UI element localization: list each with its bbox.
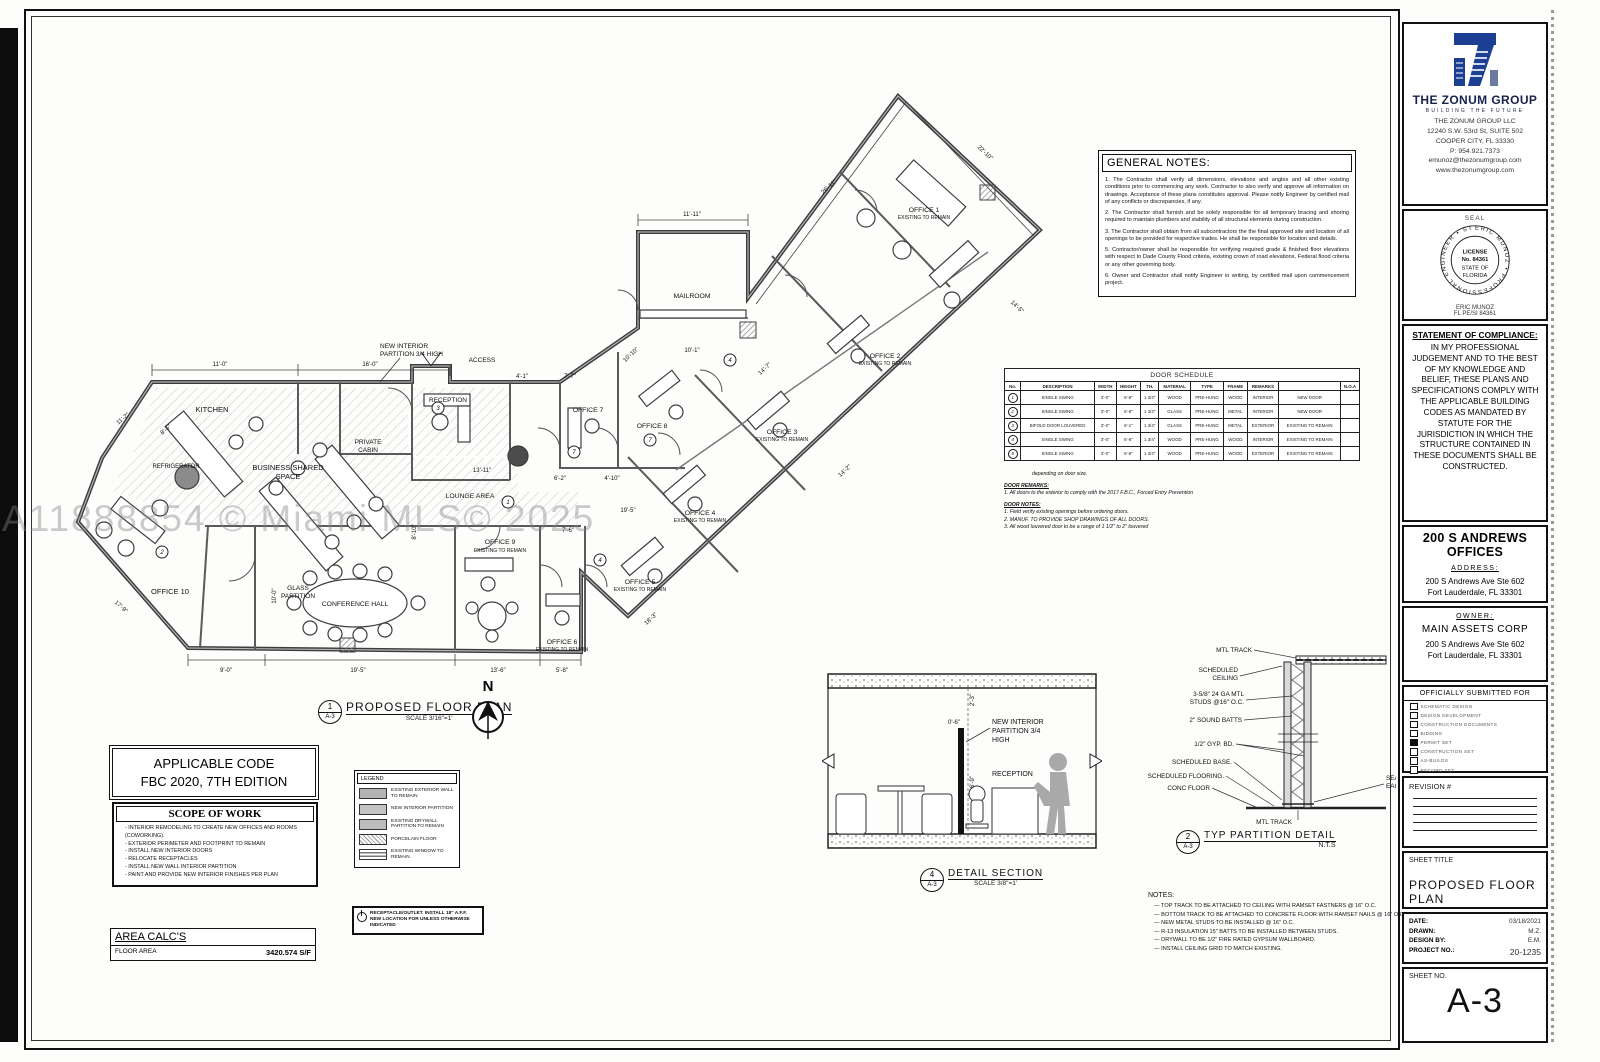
checkbox-icon	[1410, 730, 1418, 738]
submitted-for-item: BIDDING	[1410, 730, 1546, 738]
door-schedule-cell	[1340, 405, 1359, 419]
sheet-title-label: SHEET TITLE	[1409, 857, 1541, 864]
receptacle-note-text: RECEPTACLE/OUTLET. INSTALL 18" A.F.F. NE…	[370, 911, 479, 930]
design-by-label: DESIGN BY:	[1409, 937, 1467, 944]
floor-area-value: 3420.574 S/F	[266, 948, 311, 957]
owner-block: OWNER: MAIN ASSETS CORP 200 S Andrews Av…	[1402, 606, 1548, 682]
label-new-partition-2: PARTITION 3/4 HIGH	[380, 351, 443, 358]
figure-sheet: A-3	[1177, 843, 1199, 852]
room-label-office9: OFFICE 9	[485, 539, 516, 546]
door-schedule-cell: 1 3/4"	[1141, 447, 1159, 461]
sheet-number-block: SHEET NO. A-3	[1402, 967, 1548, 1043]
scope-item: INTERIOR REMODELING TO CREATE NEW OFFICE…	[125, 825, 312, 841]
legend-item: NEW INTERIOR PARTITION	[359, 804, 455, 815]
room-label-office5: OFFICE 5	[625, 579, 656, 586]
company-website: www.thezonumgroup.com	[1409, 166, 1541, 176]
floor-slab	[828, 834, 1096, 848]
owner-address1: 200 S Andrews Ave Ste 602	[1409, 639, 1541, 650]
sheet-meta-block: DATE:03/18/2021 DRAWN:M.Z. DESIGN BY:E.M…	[1402, 912, 1548, 964]
legend-heading: LEGEND	[357, 773, 457, 784]
submitted-for-item: DESIGN DEVELOPMENT	[1410, 712, 1546, 720]
seal-line: FLORIDA	[1463, 273, 1488, 279]
seal-line: LICENSE	[1463, 249, 1488, 255]
legend-label: PORCELAIN FLOOR	[391, 837, 437, 843]
room-label-office1-sub: EXISTING TO REMAIN	[898, 215, 951, 221]
figure-scale: SCALE 3/8"=1'	[948, 880, 1043, 887]
legend-swatch-icon	[359, 804, 387, 815]
dim: 22'-10"	[976, 145, 994, 162]
general-note-item: 3. The Contractor shall obtain from all …	[1105, 229, 1349, 244]
floor-area-label: FLOOR AREA	[115, 948, 157, 957]
submitted-for-heading: OFFICIALLY SUBMITTED FOR	[1404, 687, 1546, 701]
legend-item: EXISTING DRYWALL PARTITION TO REMAIN	[359, 819, 455, 831]
seal-line: No. 84361	[1462, 257, 1489, 263]
checkbox-label: SCHEMATIC DESIGN	[1421, 704, 1473, 709]
door-schedule-cell: 6'-8"	[1116, 447, 1141, 461]
revision-heading: REVISION #	[1409, 782, 1541, 791]
door-schedule-cell: WOOD	[1224, 447, 1247, 461]
partition-notes-heading: NOTES:	[1148, 892, 1408, 899]
room-label-office4-sub: EXISTING TO REMAIN	[674, 518, 727, 524]
scope-item: RELOCATE RECEPTACLES	[125, 856, 312, 864]
legend-label: EXISTING EXTERIOR WALL TO REMAIN	[391, 788, 455, 800]
project-block: 200 S ANDREWS OFFICES ADDRESS: 200 S And…	[1402, 525, 1548, 603]
figure-name: DETAIL SECTION	[948, 868, 1043, 880]
dim: 11'-11"	[683, 212, 701, 218]
door-schedule-cell	[1340, 391, 1359, 405]
submitted-for-item: SCHEMATIC DESIGN	[1410, 703, 1546, 711]
callout: CONC FLOOR	[1167, 785, 1210, 792]
callout: 1/2" GYP. BD.	[1194, 741, 1234, 748]
dim: 14'-5"	[1009, 300, 1024, 315]
door-schedule-cell: WOOD	[1159, 447, 1191, 461]
general-note-item: 2. The Contractor shall furnish and be s…	[1105, 210, 1349, 225]
seal-license: FL PE/SI 84361	[1409, 311, 1541, 317]
door-schedule-cell: GLASS	[1159, 419, 1191, 433]
scope-list: INTERIOR REMODELING TO CREATE NEW OFFICE…	[118, 825, 312, 880]
receptacle-note: RECEPTACLE/OUTLET. INSTALL 18" A.F.F. NE…	[352, 906, 484, 935]
figure-sheet: A-3	[921, 881, 943, 890]
room-label-office3: OFFICE 3	[767, 429, 798, 436]
callout: 2" SOUND BATTS	[1189, 717, 1242, 724]
checkbox-label: CONSTRUCTION DOCUMENTS	[1421, 722, 1498, 727]
owner-name: MAIN ASSETS CORP	[1409, 624, 1541, 635]
door-schedule-cell: EXISTING TO REMAIN	[1279, 419, 1340, 433]
door-schedule-cell: PRE-HUNG	[1191, 419, 1224, 433]
applicable-code-line1: APPLICABLE CODE	[115, 755, 313, 773]
human-figure	[1034, 753, 1070, 834]
partition-wall	[958, 728, 964, 834]
callout: STUDS @16" O.C.	[1190, 699, 1244, 706]
door-schedule-cell: WOOD	[1224, 391, 1247, 405]
submitted-for-item: PERMIT SET	[1410, 739, 1546, 747]
zonum-logo-icon	[1446, 30, 1504, 88]
figure-sheet: A-3	[319, 713, 341, 722]
door-schedule-cell: PRE-HUNG	[1191, 391, 1224, 405]
owner-heading: OWNER:	[1409, 613, 1541, 620]
partition-note-item: INSTALL CEILING GRID TO MATCH EXISTING.	[1148, 946, 1408, 954]
sheet-title-block: SHEET TITLE PROPOSED FLOOR PLAN	[1402, 851, 1548, 909]
engineer-seal-icon: ERIC MUNOZ • PROFESSIONAL ENGINEER • STA…	[1437, 222, 1513, 298]
room-label-office1: OFFICE 1	[909, 207, 940, 214]
sheet-no: A-3	[1409, 982, 1541, 1021]
door-schedule-column: N.O.A	[1340, 382, 1359, 391]
project-address2: Fort Lauderdale, FL 33301	[1409, 587, 1541, 598]
submitted-for-list: SCHEMATIC DESIGN DESIGN DEVELOPMENT CONS…	[1404, 703, 1546, 774]
room-label-office10: OFFICE 10	[151, 587, 189, 596]
door-schedule-cell: 3'-0"	[1094, 433, 1116, 447]
room-label-office7: OFFICE 7	[573, 407, 604, 414]
scope-item: INSTALL NEW WALL INTERIOR PARTITION	[125, 864, 312, 872]
checkbox-icon	[1410, 766, 1418, 774]
checkbox-label: PERMIT SET	[1421, 740, 1452, 745]
detail-section-title: 4 A-3 DETAIL SECTION SCALE 3/8"=1'	[920, 868, 1043, 892]
room-label-mailroom: MAILROOM	[673, 293, 710, 300]
room-label-conference: CONFERENCE HALL	[322, 601, 389, 608]
company-tagline: BUILDING THE FUTURE	[1409, 108, 1541, 114]
door-schedule-cell: INTERIOR	[1247, 405, 1279, 419]
submitted-for-item: CONSTRUCTION SET	[1410, 748, 1546, 756]
dim: 18'-3"	[644, 612, 659, 627]
dim: 4'-1"	[516, 374, 528, 380]
room-label-office9-sub: EXISTING TO REMAIN	[474, 548, 527, 554]
dim: 14'-7"	[758, 362, 773, 377]
door-schedule-cell: GLASS	[1159, 405, 1191, 419]
door-schedule-column: FRAME	[1224, 382, 1247, 391]
project-name: 200 S ANDREWS OFFICES	[1409, 531, 1541, 559]
dim: 11'-0"	[213, 362, 228, 368]
checkbox-icon	[1410, 748, 1418, 756]
partition-callouts: MTL TRACK SCHEDULED CEILING 3-5/8" 24 GA…	[1148, 647, 1396, 826]
seal-line: STATE OF	[1462, 266, 1489, 272]
submitted-for-item: CONSTRUCTION DOCUMENTS	[1410, 721, 1546, 729]
partition-note-item: BOTTOM TRACK TO BE ATTACHED TO CONCRETE …	[1148, 912, 1408, 920]
door-schedule-column: WIDTH	[1094, 382, 1116, 391]
detail-furniture	[836, 786, 1038, 834]
dim: 10'-1"	[684, 348, 699, 354]
door-schedule-cell: 6'-8"	[1116, 391, 1141, 405]
submitted-for-block: OFFICIALLY SUBMITTED FOR SCHEMATIC DESIG…	[1402, 685, 1548, 773]
legend-item: EXISTING EXTERIOR WALL TO REMAIN	[359, 788, 455, 800]
compliance-heading: STATEMENT OF COMPLIANCE:	[1409, 330, 1541, 340]
figure-number: 4	[921, 869, 943, 881]
door-schedule-cell: 3'-0"	[1094, 391, 1116, 405]
detail-label: RECEPTION	[992, 771, 1033, 778]
checkbox-icon	[1410, 712, 1418, 720]
company-address2: COOPER CITY, FL 33330	[1409, 137, 1541, 147]
door-schedule-cell: WOOD	[1224, 433, 1247, 447]
door-schedule-cell: 1 3/4"	[1141, 391, 1159, 405]
company-address1: 12240 S.W. 53rd St, SUITE 502	[1409, 127, 1541, 137]
partition-detail-title: 2 A-3 TYP PARTITION DETAIL N.T.S	[1176, 830, 1336, 854]
door-schedule-cell: 6'-8"	[1116, 405, 1141, 419]
door-schedule-cell: NEW DOOR	[1279, 391, 1340, 405]
door-schedule-cell: WOOD	[1159, 391, 1191, 405]
scope-item: EXTERIOR PERIMETER AND FOOTPRINT TO REMA…	[125, 841, 312, 849]
partition-note-item: NEW METAL STUDS TO BE INSTALLED @ 16" O.…	[1148, 920, 1408, 928]
general-note-item: 5. Contractor/owner shall be responsible…	[1105, 247, 1349, 269]
legend-swatch-icon	[359, 849, 387, 860]
partition-detail-drawing: MTL TRACK SCHEDULED CEILING 3-5/8" 24 GA…	[1146, 638, 1396, 828]
callout: MTL TRACK	[1256, 819, 1293, 826]
seal-block: SEAL ERIC MUNOZ • PROFESSIONAL ENGINEER …	[1402, 209, 1548, 321]
checkbox-icon	[1410, 721, 1418, 729]
legend-list: EXISTING EXTERIOR WALL TO REMAIN NEW INT…	[357, 788, 457, 861]
dim: 8'-10"	[412, 524, 418, 539]
legend-item: EXISTING WINDOW TO REMAIN	[359, 849, 455, 861]
dim: 5'-8"	[556, 668, 568, 674]
door-schedule-cell: PRE-HUNG	[1191, 447, 1224, 461]
door-lead-note: depending on door size.	[1032, 471, 1360, 479]
figure-scale: N.T.S	[1204, 842, 1336, 849]
checkbox-label: BIDDING	[1421, 731, 1443, 736]
project-no-label: PROJECT NO.:	[1409, 947, 1467, 957]
general-note-item: 1. The Contractor shall verify all dimen…	[1105, 177, 1349, 206]
partition-note-item: R-13 INSULATION 15" BATTS TO BE INSTALLE…	[1148, 929, 1408, 937]
door-schedule-column	[1279, 382, 1340, 391]
partition-note-item: DRYWALL TO BE 1/2" FIRE RATED GYPSUM WAL…	[1148, 937, 1408, 945]
company-phone: P: 954.921.7373	[1409, 147, 1541, 157]
callout: EACH SIDE	[1386, 783, 1396, 790]
applicable-code: APPLICABLE CODE FBC 2020, 7TH EDITION	[112, 748, 316, 797]
sheet-no-label: SHEET NO.	[1409, 973, 1541, 980]
checkbox-icon	[1410, 703, 1418, 711]
checkbox-label: CONSTRUCTION SET	[1421, 749, 1475, 754]
scope-of-work: SCOPE OF WORK INTERIOR REMODELING TO CRE…	[112, 802, 318, 887]
door-schedule-cell: 3'-0"	[1094, 447, 1116, 461]
door-schedule-cell: 6'-1"	[1116, 419, 1141, 433]
door-schedule-cell: 6'-8"	[1116, 433, 1141, 447]
callout: 3-5/8" 24 GA MTL	[1193, 691, 1244, 698]
room-label-office2-sub: EXISTING TO REMAIN	[859, 361, 912, 367]
dim: 9'-0"	[220, 668, 232, 674]
door-schedule-cell: EXISTING TO REMAIN	[1279, 433, 1340, 447]
dim: 7'-6"	[562, 528, 574, 534]
design-by-value: E.M.	[1467, 937, 1541, 944]
door-schedule-cell: NEW DOOR	[1279, 405, 1340, 419]
room-label-office2: OFFICE 2	[870, 353, 901, 360]
door-schedule-column: HEIGHT	[1116, 382, 1141, 391]
dim: 4'-10"	[604, 476, 619, 482]
date-label: DATE:	[1409, 918, 1467, 925]
partition-notes-list: TOP TRACK TO BE ATTACHED TO CEILING WITH…	[1148, 903, 1408, 953]
callout: SCHEDULED FLOORING.	[1148, 773, 1225, 780]
door-schedule-column: MATERIAL	[1159, 382, 1191, 391]
scope-item: INSTALL NEW INTERIOR DOORS	[125, 848, 312, 856]
checkbox-icon	[1410, 757, 1418, 765]
legend-swatch-icon	[359, 819, 387, 830]
sheet-title: PROPOSED FLOOR PLAN	[1409, 878, 1541, 906]
general-notes-heading: GENERAL NOTES:	[1102, 154, 1352, 172]
floor-plan-drawing: 3 1 7 7 4 2 4 KITCHEN REFRIGERATOR BUSIN…	[40, 60, 1060, 705]
room-label-reception: RECEPTION	[429, 397, 467, 404]
scope-heading: SCOPE OF WORK	[116, 806, 314, 822]
applicable-code-line2: FBC 2020, 7TH EDITION	[115, 773, 313, 791]
door-schedule-cell: 3'-0"	[1094, 405, 1116, 419]
dim: 16'-0"	[362, 362, 377, 368]
room-label-refrigerator: REFRIGERATOR	[152, 464, 200, 470]
door-schedule-cell	[1340, 433, 1359, 447]
photo-left-edge	[0, 28, 18, 1042]
dim: 19'-5"	[620, 508, 635, 514]
room-label-office5-sub: EXISTING TO REMAIN	[614, 587, 667, 593]
submitted-for-item: RECORD SET	[1410, 766, 1546, 774]
callout: SCHEDULED BASE.	[1172, 759, 1232, 766]
sheet-edge-strip	[1551, 10, 1554, 1046]
room-label-glass-1: GLASS	[287, 585, 309, 592]
project-address1: 200 S Andrews Ave Ste 602	[1409, 576, 1541, 587]
drawn-value: M.Z.	[1467, 928, 1541, 935]
room-label-office6-sub: EXISTING TO REMAIN	[536, 647, 589, 653]
callout: MTL TRACK	[1216, 647, 1253, 654]
checkbox-label: DESIGN DEVELOPMENT	[1421, 713, 1482, 718]
owner-address2: Fort Lauderdale, FL 33301	[1409, 650, 1541, 661]
room-label-lounge: LOUNGE AREA	[446, 493, 495, 500]
room-label-access: ACCESS	[469, 357, 496, 364]
legend-swatch-icon	[359, 834, 387, 845]
detail-dim: 6'-9"	[970, 776, 976, 788]
door-schedule-cell: PRE-HUNG	[1191, 433, 1224, 447]
dim: 14'-2"	[838, 464, 853, 479]
door-tag: 1	[506, 500, 509, 506]
door-schedule-cell: EXTERIOR	[1247, 419, 1279, 433]
legend-label: NEW INTERIOR PARTITION	[391, 806, 453, 812]
detail-label: PARTITION 3/4	[992, 728, 1040, 735]
room-label-shared-2: SPACE	[276, 472, 301, 481]
door-schedule-cell: PRE-HUNG	[1191, 405, 1224, 419]
door-schedule-cell: INTERIOR	[1247, 391, 1279, 405]
dim: 10'-0"	[272, 588, 278, 603]
room-label-office4: OFFICE 4	[685, 510, 716, 517]
partition-notes: NOTES: TOP TRACK TO BE ATTACHED TO CEILI…	[1148, 892, 1408, 954]
compliance-body: IN MY PROFESSIONAL JUDGEMENT AND TO THE …	[1409, 343, 1541, 473]
area-calcs-heading: AREA CALC'S	[111, 929, 315, 943]
general-notes-list: 1. The Contractor shall verify all dimen…	[1099, 175, 1355, 296]
receptacle-icon	[357, 912, 367, 922]
door-schedule-cell: 3'-0"	[1094, 419, 1116, 433]
door-schedule-column: TYPE	[1191, 382, 1224, 391]
room-label-shared-1: BUSINESS SHARED	[252, 463, 324, 472]
figure-bubble: 4 A-3	[920, 868, 944, 892]
room-label-office6: OFFICE 6	[547, 639, 578, 646]
detail-label: HIGH	[992, 737, 1010, 744]
door-schedule-cell: INTERIOR	[1247, 433, 1279, 447]
door-tag: 2	[159, 550, 164, 556]
label-new-partition-1: NEW INTERIOR	[380, 343, 428, 350]
date-value: 03/18/2021	[1467, 918, 1541, 925]
door-schedule-cell: 1 3/4"	[1141, 405, 1159, 419]
door-schedule-cell	[1340, 419, 1359, 433]
dim: 13'-11"	[473, 468, 491, 474]
door-schedule-column: REMARKS	[1247, 382, 1279, 391]
company-llc: THE ZONUM GROUP LLC	[1409, 117, 1541, 127]
door-schedule-cell: WOOD	[1159, 433, 1191, 447]
room-label-private-1: PRIVATE	[355, 439, 383, 446]
figure-number: 2	[1177, 831, 1199, 843]
door-schedule-cell: METAL	[1224, 419, 1247, 433]
figure-name: TYP PARTITION DETAIL	[1204, 830, 1336, 842]
detail-dim: 0'-6"	[948, 720, 960, 726]
door-schedule-cell: EXTERIOR	[1247, 447, 1279, 461]
room-label-private-2: CABIN	[358, 447, 378, 454]
callout: CEILING	[1212, 675, 1238, 682]
compliance-block: STATEMENT OF COMPLIANCE: IN MY PROFESSIO…	[1402, 324, 1548, 522]
door-schedule-cell: 1 3/4"	[1141, 419, 1159, 433]
callout: SEALANT	[1386, 775, 1396, 782]
company-email: emunoz@thezonumgroup.com	[1409, 156, 1541, 166]
legend-swatch-icon	[359, 788, 387, 799]
scope-item: PAINT AND PROVIDE NEW INTERIOR FINISHES …	[125, 872, 312, 880]
dim: 26'-11"	[821, 179, 838, 196]
company-block: THE ZONUM GROUP BUILDING THE FUTURE THE …	[1402, 22, 1548, 206]
checkbox-icon	[1410, 739, 1418, 747]
dim: 10'-10"	[622, 347, 640, 364]
room-label-kitchen: KITCHEN	[196, 405, 229, 414]
drawing-sheet: A11888854 © Miami MLS© 2025	[0, 0, 1600, 1062]
dim: 17'-9"	[113, 600, 128, 615]
dim: 6'-2"	[554, 476, 566, 482]
legend: LEGEND EXISTING EXTERIOR WALL TO REMAIN …	[354, 770, 460, 868]
room-label-glass-2: PARTITION	[281, 593, 315, 600]
dim: 7'-7"	[564, 374, 576, 380]
door-schedule-column: TH.	[1141, 382, 1159, 391]
dim: 13'-6"	[490, 668, 505, 674]
legend-label: EXISTING DRYWALL PARTITION TO REMAIN	[391, 819, 455, 831]
door-schedule-cell: EXISTING TO REMAIN	[1279, 447, 1340, 461]
legend-label: EXISTING WINDOW TO REMAIN	[391, 849, 455, 861]
project-no-value: 20-1235	[1467, 947, 1541, 957]
checkbox-label: AS-BUILDS	[1421, 758, 1449, 763]
dim: 19'-5"	[350, 668, 365, 674]
company-name: THE ZONUM GROUP	[1409, 93, 1541, 107]
legend-item: PORCELAIN FLOOR	[359, 834, 455, 845]
general-notes: GENERAL NOTES: 1. The Contractor shall v…	[1098, 150, 1356, 297]
checkbox-label: RECORD SET	[1421, 768, 1455, 773]
room-label-office3-sub: EXISTING TO REMAIN	[756, 437, 809, 443]
drawn-label: DRAWN:	[1409, 928, 1467, 935]
door-schedule-cell: METAL	[1224, 405, 1247, 419]
callout: SCHEDULED	[1199, 667, 1239, 674]
door-schedule-cell	[1340, 447, 1359, 461]
detail-label: NEW INTERIOR	[992, 719, 1044, 726]
partition-note-item: TOP TRACK TO BE ATTACHED TO CEILING WITH…	[1148, 903, 1408, 911]
room-label-office8: OFFICE 8	[637, 423, 668, 430]
area-calcs: AREA CALC'S FLOOR AREA 3420.574 S/F	[110, 928, 316, 961]
submitted-for-item: AS-BUILDS	[1410, 757, 1546, 765]
revision-block: REVISION #	[1402, 776, 1548, 848]
seal-label: SEAL	[1409, 215, 1541, 222]
figure-bubble: 2 A-3	[1176, 830, 1200, 854]
door-schedule-cell: 1 3/4"	[1141, 433, 1159, 447]
general-note-item: 6. Owner and Contractor shall notify Eng…	[1105, 273, 1349, 288]
project-address-heading: ADDRESS:	[1409, 565, 1541, 572]
